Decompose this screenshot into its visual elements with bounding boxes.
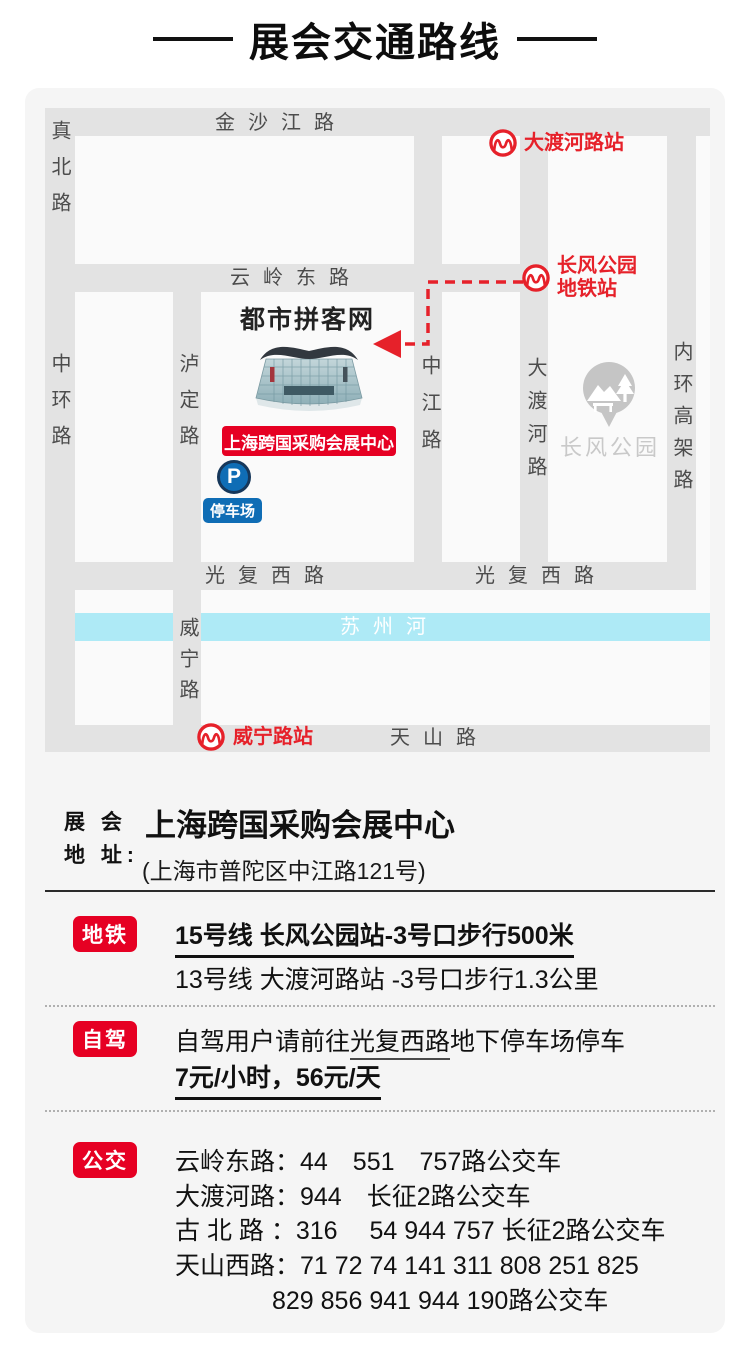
driving-line1: 自驾用户请前往光复西路地下停车场停车 (175, 1022, 625, 1058)
title-decor-line-right (517, 37, 597, 41)
bus-line-yunling: 云岭东路：44 551 757路公交车 (175, 1142, 561, 1178)
address-label: 展 会地 址: (64, 806, 139, 872)
address-label-line2: 地 址: (64, 844, 139, 867)
station-label-changfeng: 长风公园 地铁站 (557, 255, 637, 301)
metro-logo-icon (488, 128, 518, 158)
page-title: 展会交通路线 (249, 10, 501, 68)
bus-line-tianshanxi-cont: 829 856 941 944 190路公交车 (272, 1281, 608, 1317)
bus-line-daduhe: 大渡河路：944 长征2路公交车 (175, 1177, 531, 1213)
metro-line2: 13号线 大渡河路站 -3号口步行1.3公里 (175, 960, 599, 996)
metro-logo-icon (521, 263, 551, 293)
driving-line1-road: 光复西路 (350, 1028, 450, 1060)
parking-lot-tag: 停车场 (203, 498, 262, 523)
divider-dotted (45, 1110, 715, 1112)
site-brand-label: 都市拼客网 (201, 300, 414, 336)
metro-logo-icon (196, 722, 226, 752)
address-detail: (上海市普陀区中江路121号) (142, 852, 426, 886)
park-icon (577, 361, 641, 429)
venue-name-tag: 上海跨国采购会展中心 (222, 426, 396, 456)
bus-line-tianshanxi: 天山西路：71 72 74 141 311 808 251 825 (175, 1246, 639, 1282)
exhibition-traffic-poster: { "title": { "text": "展会交通路线" }, "colors… (0, 0, 750, 1357)
divider-dotted (45, 1005, 715, 1007)
station-label-daduhe: 大渡河路站 (524, 132, 624, 155)
address-label-line1: 展 会 (64, 811, 127, 834)
metro-line1: 15号线 长风公园站-3号口步行500米 (175, 922, 574, 958)
title-decor-line-left (153, 37, 233, 41)
walking-route-dashed-line (401, 282, 523, 344)
metro-badge: 地铁 (73, 916, 137, 952)
venue-building-illustration (250, 336, 368, 418)
address-venue-name: 上海跨国采购会展中心 (145, 800, 455, 845)
station-label-weining: 威宁路站 (233, 726, 313, 749)
driving-line1-post: 地下停车场停车 (450, 1028, 625, 1056)
driving-line2-price: 7元/小时，56元/天 (175, 1064, 381, 1100)
driving-line1-pre: 自驾用户请前往 (175, 1028, 350, 1056)
driving-badge: 自驾 (73, 1021, 137, 1057)
parking-icon: P (217, 460, 251, 494)
station-label-changfeng-line2: 地铁站 (557, 278, 637, 301)
bus-badge: 公交 (73, 1142, 137, 1178)
page-header: 展会交通路线 (0, 10, 750, 68)
station-label-changfeng-line1: 长风公园 (557, 255, 637, 278)
park-name-label: 长风公园 (555, 430, 665, 462)
traffic-map: 金沙江路 云岭东路 光复西路 光复西路 天山路 苏州河 真北路 中环路 泸定路 … (45, 108, 710, 752)
bus-line-gubei: 古 北 路 ：316 54 944 757 长征2路公交车 (175, 1211, 665, 1247)
divider-solid (45, 890, 715, 892)
